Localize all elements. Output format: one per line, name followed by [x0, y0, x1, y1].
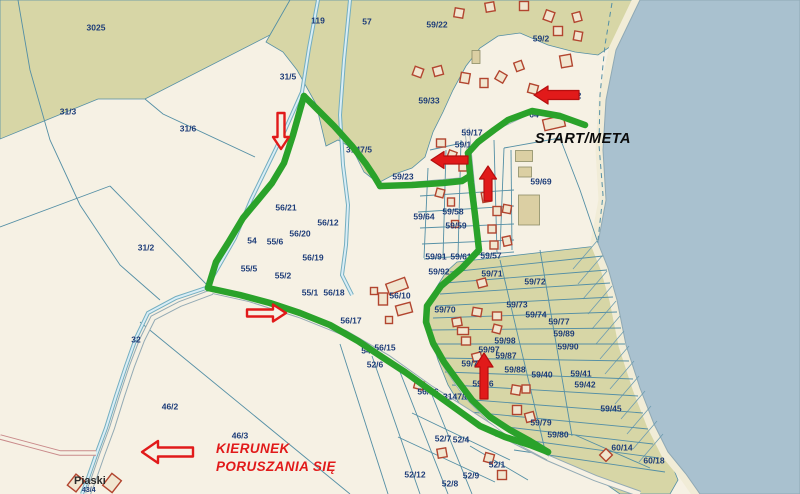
- building: [572, 12, 582, 23]
- building: [485, 2, 495, 12]
- parcel-label: 59/77: [548, 316, 570, 326]
- parcel-label: 56/19: [302, 252, 324, 262]
- parcel-label: 55/5: [241, 263, 258, 273]
- building: [379, 293, 388, 305]
- parcel-label: 59/70: [434, 304, 456, 314]
- building: [454, 8, 464, 18]
- parcel-label: 59/72: [524, 276, 546, 286]
- parcel-label: 119: [311, 15, 325, 25]
- parcel-label: 59/22: [426, 19, 448, 29]
- parcel-label: 52/6: [367, 359, 384, 369]
- building: [554, 27, 563, 36]
- parcel-label: 55/1: [302, 287, 319, 297]
- building: [493, 207, 501, 216]
- parcel-label: 59/58: [442, 206, 464, 216]
- building: [488, 225, 496, 233]
- parcel-label: 52/4: [453, 434, 470, 444]
- building: [513, 406, 522, 415]
- parcel-label: 59/57: [480, 250, 502, 260]
- building: [460, 72, 471, 83]
- parcel-label: 59/41: [570, 368, 592, 378]
- building: [435, 188, 445, 198]
- building: [472, 51, 480, 64]
- building: [480, 79, 488, 88]
- parcel-label: 59/92: [428, 266, 450, 276]
- parcel-label: 59/64: [413, 211, 435, 221]
- parcel-label: 59/40: [531, 369, 553, 379]
- parcel-label: 52/7: [435, 433, 452, 443]
- parcel-label: 60/18: [643, 455, 665, 465]
- parcel-label: 59/88: [504, 364, 526, 374]
- parcel-label: 31/2: [138, 242, 155, 252]
- building: [493, 312, 502, 320]
- parcel-label: 56/21: [275, 202, 297, 212]
- parcel-label: 56/18: [323, 287, 345, 297]
- building: [386, 317, 393, 324]
- parcel-label: 55/2: [275, 270, 292, 280]
- parcel-label: 59/33: [418, 95, 440, 105]
- building: [498, 471, 507, 480]
- parcel-label: 46/2: [162, 401, 179, 411]
- parcel-label: 59/23: [392, 171, 414, 181]
- building: [490, 241, 498, 249]
- building: [472, 307, 482, 316]
- building: [492, 324, 502, 334]
- parcel-label: 57: [362, 16, 372, 26]
- parcel-label: 59/2: [533, 33, 550, 43]
- building: [437, 139, 446, 147]
- parcel-label: 59/90: [557, 341, 579, 351]
- parcel-label: 56/20: [289, 228, 311, 238]
- building: [452, 317, 462, 326]
- parcel-label: 59/80: [547, 429, 569, 439]
- parcel-label: 52/9: [463, 470, 480, 480]
- cadastral-route-map[interactable]: 302531/31195759/2259/231/531/659/3326459…: [0, 0, 800, 494]
- building: [412, 66, 424, 78]
- parcel-label: 60/14: [611, 442, 633, 452]
- parcel-label: 56/12: [317, 217, 339, 227]
- parcel-label: 31/6: [180, 123, 197, 133]
- building: [511, 385, 521, 395]
- parcel-label: 56/10: [389, 290, 411, 300]
- building: [448, 198, 455, 206]
- parcel-label: 59/59: [445, 220, 467, 230]
- parcel-label: 54: [247, 235, 257, 245]
- building: [519, 195, 540, 225]
- parcel-label: 59/79: [530, 417, 552, 427]
- parcel-label: 31/5: [280, 71, 297, 81]
- building: [437, 448, 447, 458]
- parcel-label: 59/71: [481, 268, 503, 278]
- building: [502, 204, 511, 213]
- parcel-label: 59/17: [461, 127, 483, 137]
- building: [371, 288, 378, 295]
- building: [520, 2, 529, 11]
- parcel-label: 52/12: [404, 469, 426, 479]
- building: [573, 31, 582, 41]
- parcel-label: 59/42: [574, 379, 596, 389]
- building: [522, 385, 530, 393]
- building: [432, 65, 443, 76]
- parcel-label: 32: [131, 334, 141, 344]
- parcel-label: 31/3: [60, 106, 77, 116]
- building: [477, 278, 488, 288]
- parcel-label: 46/3: [232, 430, 249, 440]
- parcel-label: 3025: [87, 22, 106, 32]
- parcel-label: 55/6: [267, 236, 284, 246]
- parcel-label: 59/45: [600, 403, 622, 413]
- parcel-label: 52/8: [442, 478, 459, 488]
- parcel-label: 59/74: [525, 309, 547, 319]
- map-svg: 302531/31195759/2259/231/531/659/3326459…: [0, 0, 800, 494]
- building: [516, 151, 533, 162]
- parcel-label: 59/87: [495, 350, 517, 360]
- parcel-label: 56/17: [340, 315, 362, 325]
- parcel-label: 59/73: [506, 299, 528, 309]
- parcel-label: 59/91: [425, 251, 447, 261]
- parcel-label: 59/69: [530, 176, 552, 186]
- parcel-label: 59/89: [553, 328, 575, 338]
- building: [560, 54, 573, 68]
- building: [502, 236, 512, 246]
- building: [462, 337, 471, 345]
- parcel-label: 52/1: [489, 459, 506, 469]
- building: [458, 328, 469, 335]
